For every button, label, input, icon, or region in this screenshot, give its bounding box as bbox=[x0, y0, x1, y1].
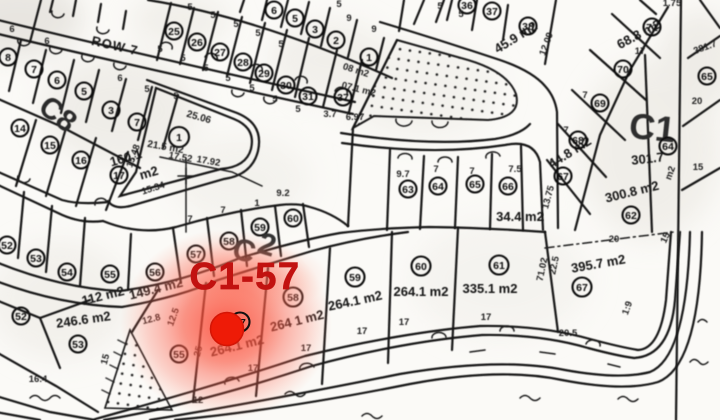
svg-text:3: 3 bbox=[312, 24, 318, 36]
svg-text:5: 5 bbox=[81, 86, 87, 98]
svg-text:14: 14 bbox=[14, 123, 26, 135]
svg-text:68: 68 bbox=[572, 135, 584, 147]
svg-text:5: 5 bbox=[255, 28, 261, 39]
svg-text:6: 6 bbox=[9, 24, 14, 35]
svg-text:7: 7 bbox=[220, 205, 225, 216]
svg-text:5: 5 bbox=[210, 10, 216, 21]
svg-text:1: 1 bbox=[366, 52, 372, 64]
svg-text:67: 67 bbox=[557, 171, 569, 183]
svg-text:65: 65 bbox=[469, 179, 481, 191]
svg-text:7: 7 bbox=[134, 117, 140, 129]
svg-text:6: 6 bbox=[44, 36, 49, 47]
svg-text:5: 5 bbox=[233, 19, 239, 30]
svg-text:6: 6 bbox=[271, 5, 277, 17]
svg-text:5: 5 bbox=[295, 104, 301, 115]
svg-text:1: 1 bbox=[254, 198, 260, 209]
svg-text:5: 5 bbox=[180, 53, 186, 64]
svg-text:27: 27 bbox=[214, 47, 226, 59]
svg-text:59: 59 bbox=[349, 272, 361, 284]
svg-text:5: 5 bbox=[437, 1, 443, 12]
svg-text:26: 26 bbox=[191, 37, 203, 49]
svg-text:60: 60 bbox=[415, 261, 427, 273]
svg-text:69: 69 bbox=[594, 98, 606, 110]
svg-text:15: 15 bbox=[44, 140, 56, 152]
svg-text:5: 5 bbox=[225, 73, 231, 84]
svg-text:6: 6 bbox=[54, 75, 60, 87]
svg-text:16.4: 16.4 bbox=[29, 374, 48, 385]
svg-text:15: 15 bbox=[693, 162, 704, 173]
svg-text:9: 9 bbox=[371, 24, 376, 35]
svg-text:7: 7 bbox=[469, 166, 474, 177]
svg-text:7: 7 bbox=[31, 64, 37, 76]
svg-text:65: 65 bbox=[701, 71, 713, 83]
svg-text:67: 67 bbox=[576, 282, 588, 294]
svg-text:7: 7 bbox=[582, 90, 587, 101]
svg-text:9.7: 9.7 bbox=[396, 169, 409, 180]
svg-text:C1-57: C1-57 bbox=[190, 256, 301, 298]
svg-text:20: 20 bbox=[692, 96, 703, 107]
svg-text:7: 7 bbox=[433, 164, 438, 175]
svg-text:335.1 m2: 335.1 m2 bbox=[463, 281, 518, 296]
svg-text:2: 2 bbox=[333, 35, 339, 47]
svg-text:20: 20 bbox=[609, 234, 620, 245]
svg-text:63: 63 bbox=[402, 184, 414, 196]
svg-text:16: 16 bbox=[75, 155, 87, 167]
svg-text:60: 60 bbox=[287, 213, 299, 225]
svg-text:7: 7 bbox=[187, 214, 192, 225]
svg-text:64: 64 bbox=[662, 141, 674, 153]
svg-text:5: 5 bbox=[336, 0, 342, 10]
svg-text:5: 5 bbox=[187, 2, 193, 13]
svg-text:5: 5 bbox=[272, 94, 278, 105]
svg-text:7: 7 bbox=[550, 160, 555, 171]
svg-text:1: 1 bbox=[176, 132, 182, 144]
svg-text:28: 28 bbox=[237, 57, 249, 69]
svg-text:8: 8 bbox=[5, 52, 11, 64]
svg-text:37: 37 bbox=[486, 6, 498, 18]
svg-text:3: 3 bbox=[108, 105, 114, 117]
svg-text:61: 61 bbox=[493, 260, 505, 272]
svg-text:17: 17 bbox=[635, 46, 646, 57]
svg-text:9: 9 bbox=[346, 13, 351, 24]
svg-text:5: 5 bbox=[458, 9, 464, 20]
svg-text:5: 5 bbox=[249, 83, 255, 94]
svg-text:5: 5 bbox=[144, 84, 150, 95]
svg-text:17: 17 bbox=[481, 312, 492, 323]
svg-text:55: 55 bbox=[104, 269, 116, 281]
svg-text:66: 66 bbox=[502, 181, 514, 193]
svg-text:7.5: 7.5 bbox=[508, 164, 522, 175]
svg-text:5: 5 bbox=[203, 63, 209, 74]
svg-text:264.1 m2: 264.1 m2 bbox=[394, 284, 449, 299]
svg-text:5: 5 bbox=[292, 13, 298, 25]
svg-text:54: 54 bbox=[61, 267, 73, 279]
svg-text:17: 17 bbox=[399, 317, 410, 328]
svg-text:31: 31 bbox=[302, 91, 314, 103]
svg-text:34.4 m2: 34.4 m2 bbox=[496, 209, 544, 224]
svg-text:53: 53 bbox=[30, 253, 42, 265]
svg-text:30: 30 bbox=[280, 80, 292, 92]
svg-text:17: 17 bbox=[113, 170, 125, 182]
svg-text:9.2: 9.2 bbox=[276, 188, 289, 199]
svg-text:70: 70 bbox=[617, 64, 629, 76]
svg-text:53: 53 bbox=[72, 339, 84, 351]
svg-text:25: 25 bbox=[168, 26, 180, 38]
svg-text:7: 7 bbox=[563, 125, 568, 136]
svg-text:5: 5 bbox=[278, 39, 284, 50]
svg-text:37: 37 bbox=[337, 92, 349, 104]
svg-text:62: 62 bbox=[625, 210, 637, 222]
svg-text:6: 6 bbox=[117, 73, 122, 84]
svg-text:1.75: 1.75 bbox=[663, 0, 682, 9]
svg-text:52: 52 bbox=[1, 240, 13, 252]
svg-text:3.7: 3.7 bbox=[323, 109, 336, 120]
svg-text:17: 17 bbox=[357, 326, 368, 337]
svg-text:29: 29 bbox=[258, 68, 270, 80]
svg-text:64: 64 bbox=[432, 181, 444, 193]
svg-text:5: 5 bbox=[157, 44, 163, 55]
